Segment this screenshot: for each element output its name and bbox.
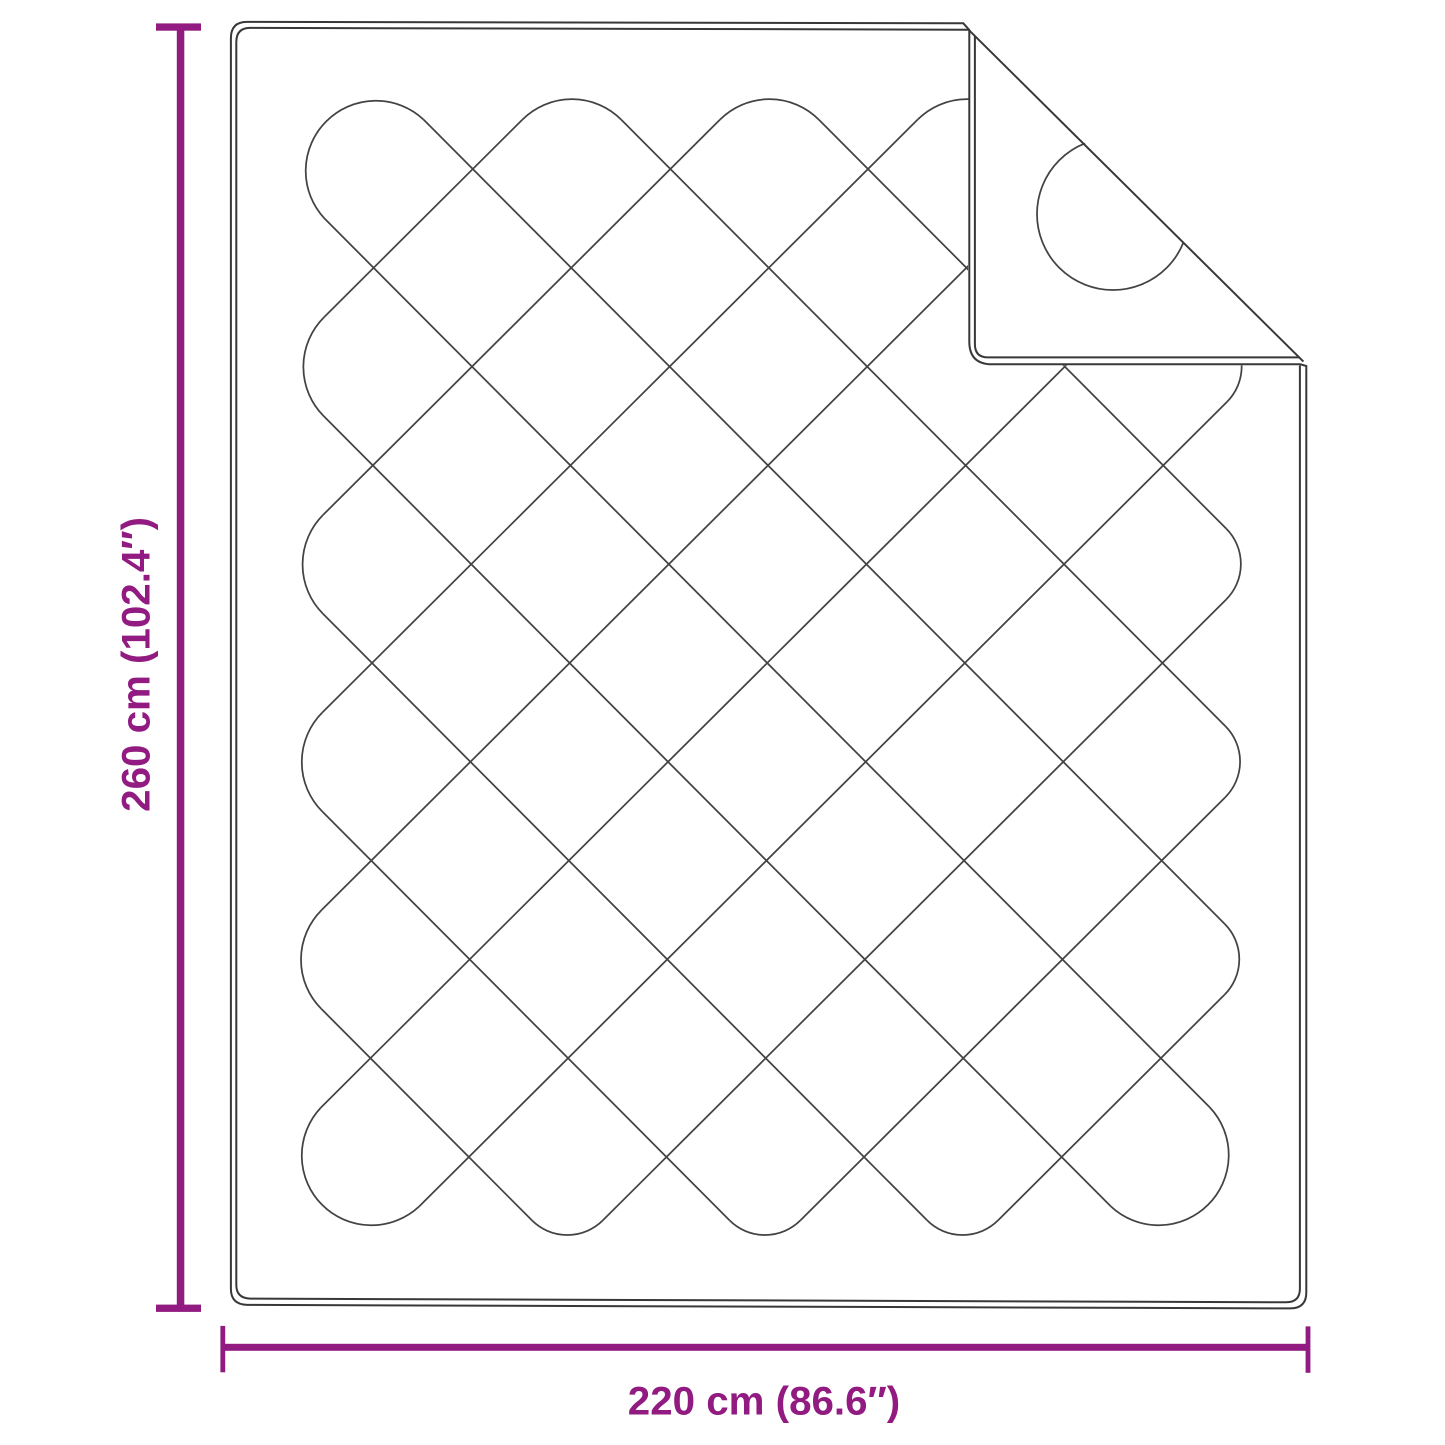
svg-text:220 cm (86.6″): 220 cm (86.6″) [628, 1379, 900, 1424]
svg-text:260 cm (102.4″): 260 cm (102.4″) [114, 517, 159, 812]
